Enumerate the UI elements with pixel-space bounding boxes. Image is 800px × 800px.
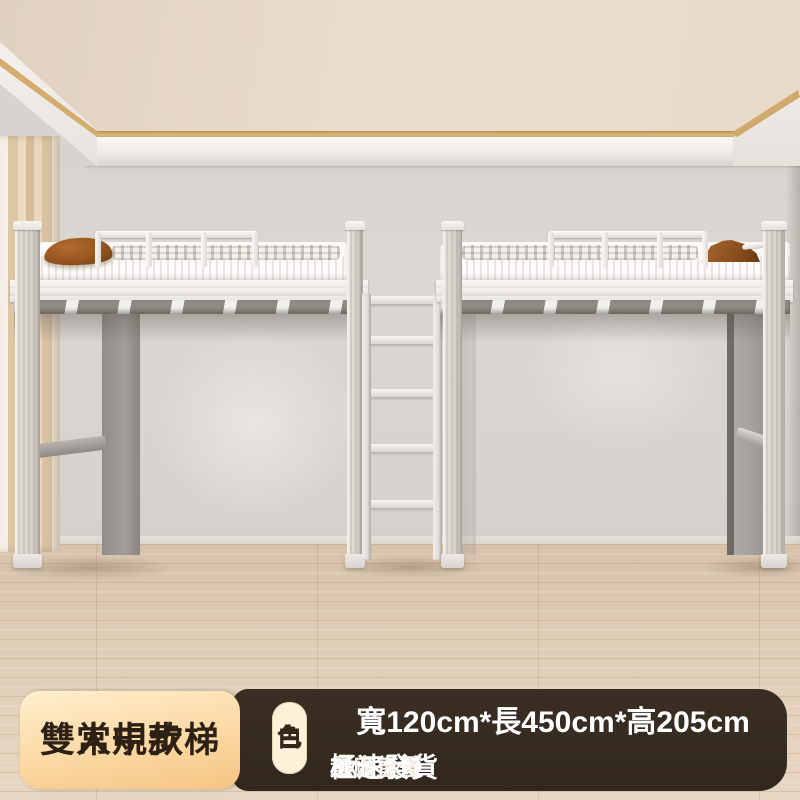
variant-char-bottom: 色 bbox=[277, 724, 302, 752]
floor-shadow-mid bbox=[330, 556, 490, 578]
ceiling bbox=[0, 0, 800, 140]
product-name-card: 雙人中步梯 常規款 bbox=[20, 691, 240, 789]
product-name-line2: 常規款 bbox=[76, 720, 184, 761]
crown-molding bbox=[85, 137, 800, 166]
led-light-strip bbox=[88, 131, 742, 137]
perk-fast-shipping: 極速發貨 bbox=[330, 746, 438, 785]
variant-pill: 白 色 bbox=[272, 702, 307, 774]
floor-shadow-right-bed bbox=[700, 556, 800, 578]
dimensions-text: 寬120cm*長450cm*高205cm bbox=[322, 703, 784, 743]
product-image-canvas: 雙人中步梯 常規款 白 色 寬120cm*長450cm*高205cm 工廠直營 … bbox=[0, 0, 800, 800]
wall-light-patch-left bbox=[150, 320, 360, 530]
curtain bbox=[0, 136, 60, 552]
wall-light-patch-right bbox=[520, 290, 720, 450]
floor-shadow-left-bed bbox=[0, 556, 180, 580]
perks-row: 工廠直營 量大從優 極速發貨 bbox=[330, 748, 778, 782]
